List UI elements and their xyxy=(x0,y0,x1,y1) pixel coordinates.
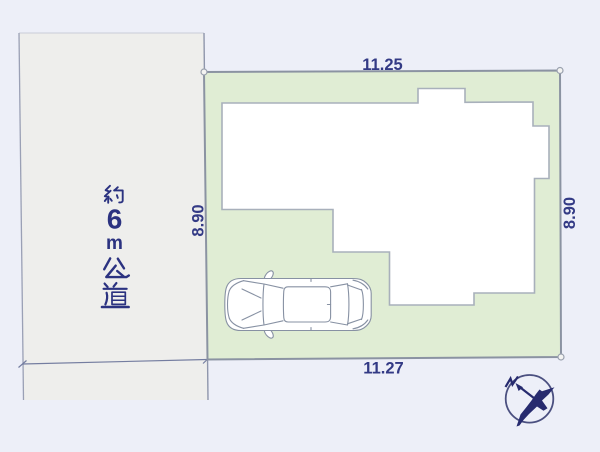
svg-text:6: 6 xyxy=(107,204,123,235)
svg-text:8.90: 8.90 xyxy=(561,197,579,229)
svg-text:8.90: 8.90 xyxy=(190,204,208,236)
svg-text:11.25: 11.25 xyxy=(362,56,402,74)
svg-text:m: m xyxy=(106,233,123,254)
svg-text:11.27: 11.27 xyxy=(363,360,403,378)
